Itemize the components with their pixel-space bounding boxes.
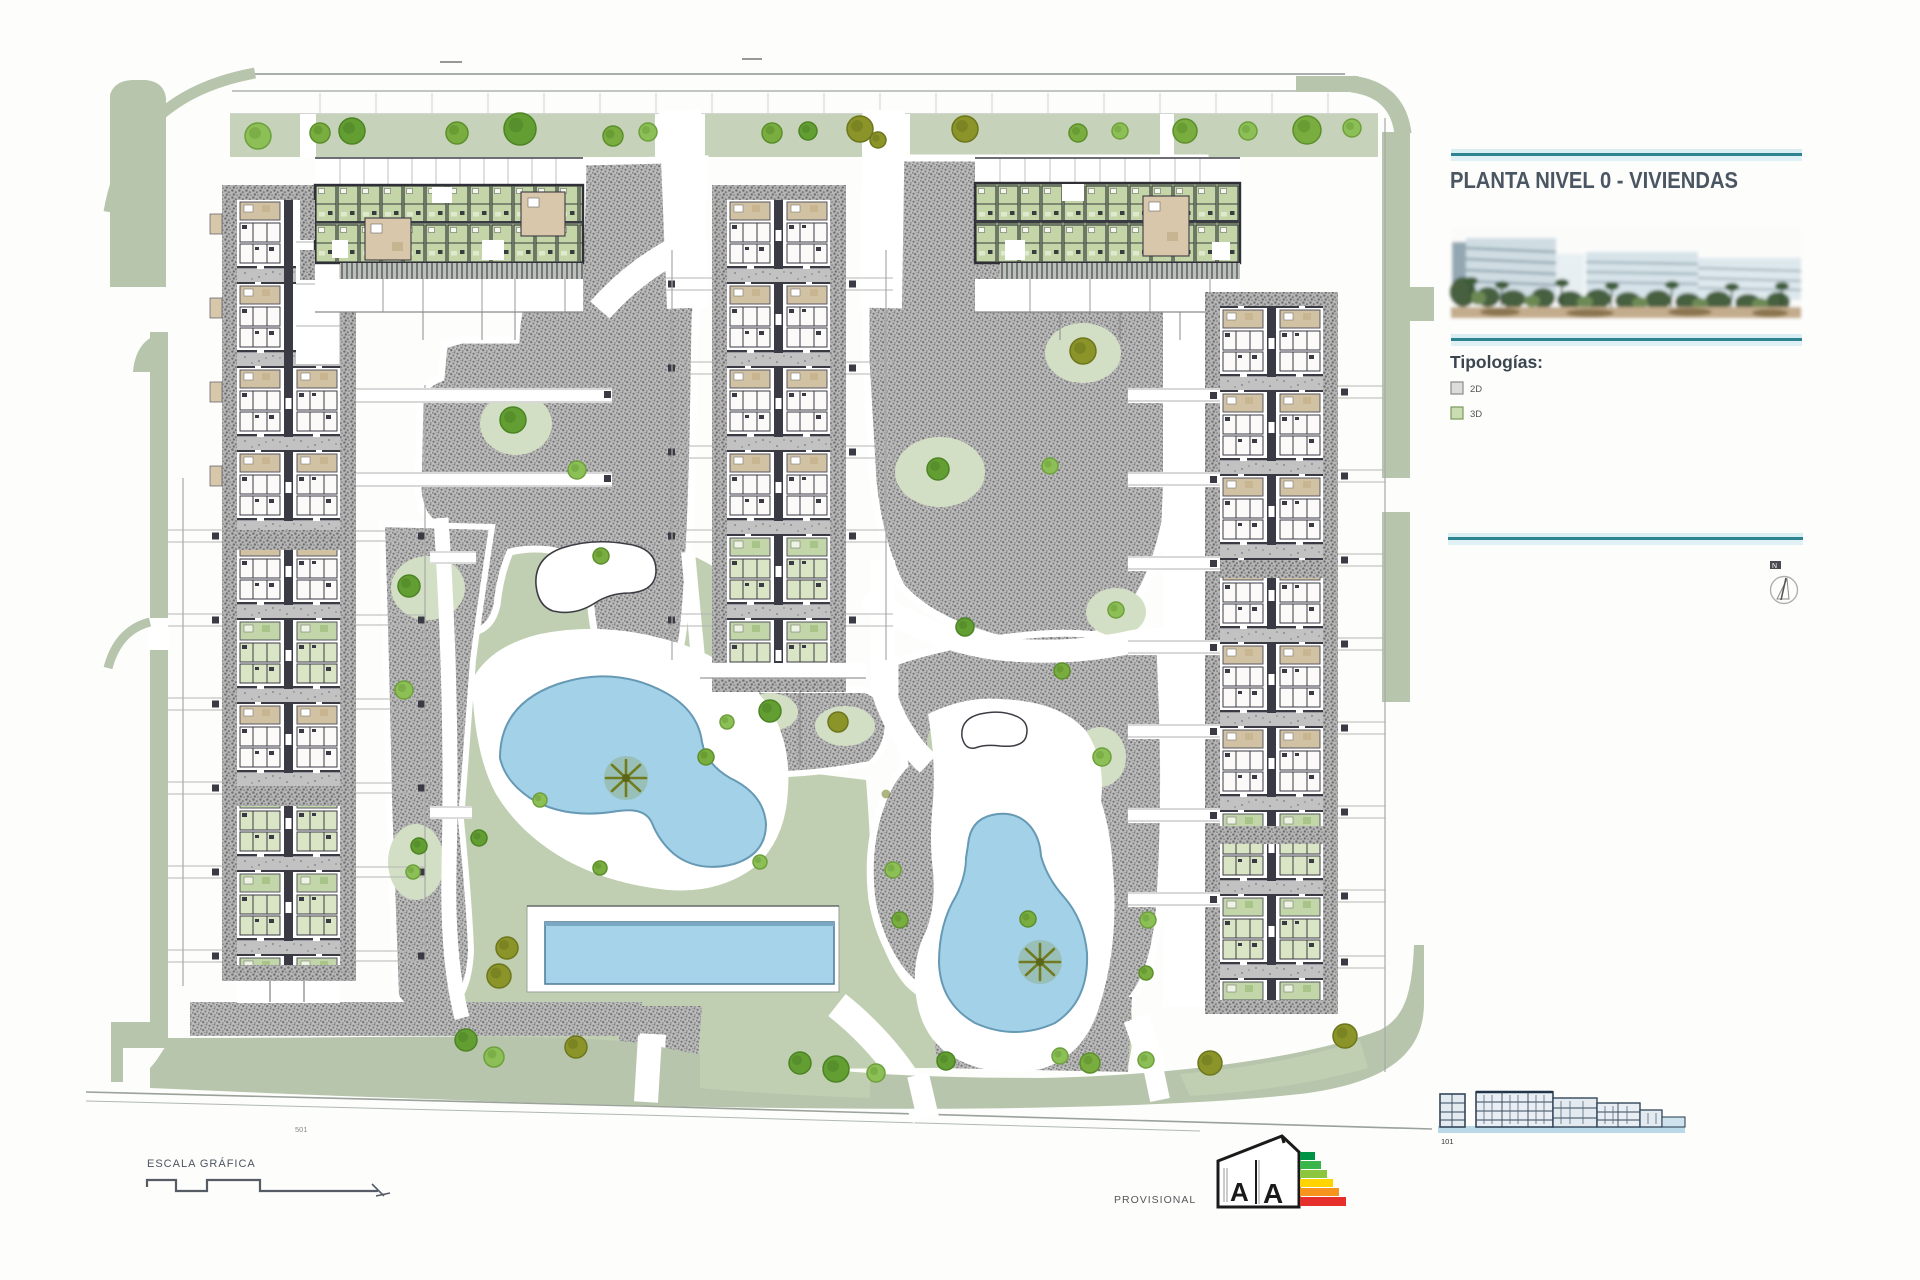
svg-text:A: A xyxy=(1263,1178,1283,1209)
svg-text:PLANTA NIVEL 0 - VIVIENDAS: PLANTA NIVEL 0 - VIVIENDAS xyxy=(1450,167,1738,193)
svg-text:ESCALA GRÁFICA: ESCALA GRÁFICA xyxy=(147,1157,256,1170)
svg-text:501: 501 xyxy=(295,1125,308,1134)
svg-text:3D: 3D xyxy=(1470,409,1482,420)
svg-text:A: A xyxy=(1230,1177,1249,1207)
svg-text:PROVISIONAL: PROVISIONAL xyxy=(1114,1194,1196,1206)
svg-text:101: 101 xyxy=(1441,1137,1454,1146)
svg-text:2D: 2D xyxy=(1470,384,1482,395)
svg-text:Tipologías:: Tipologías: xyxy=(1450,352,1543,372)
svg-text:N: N xyxy=(1772,563,1777,570)
